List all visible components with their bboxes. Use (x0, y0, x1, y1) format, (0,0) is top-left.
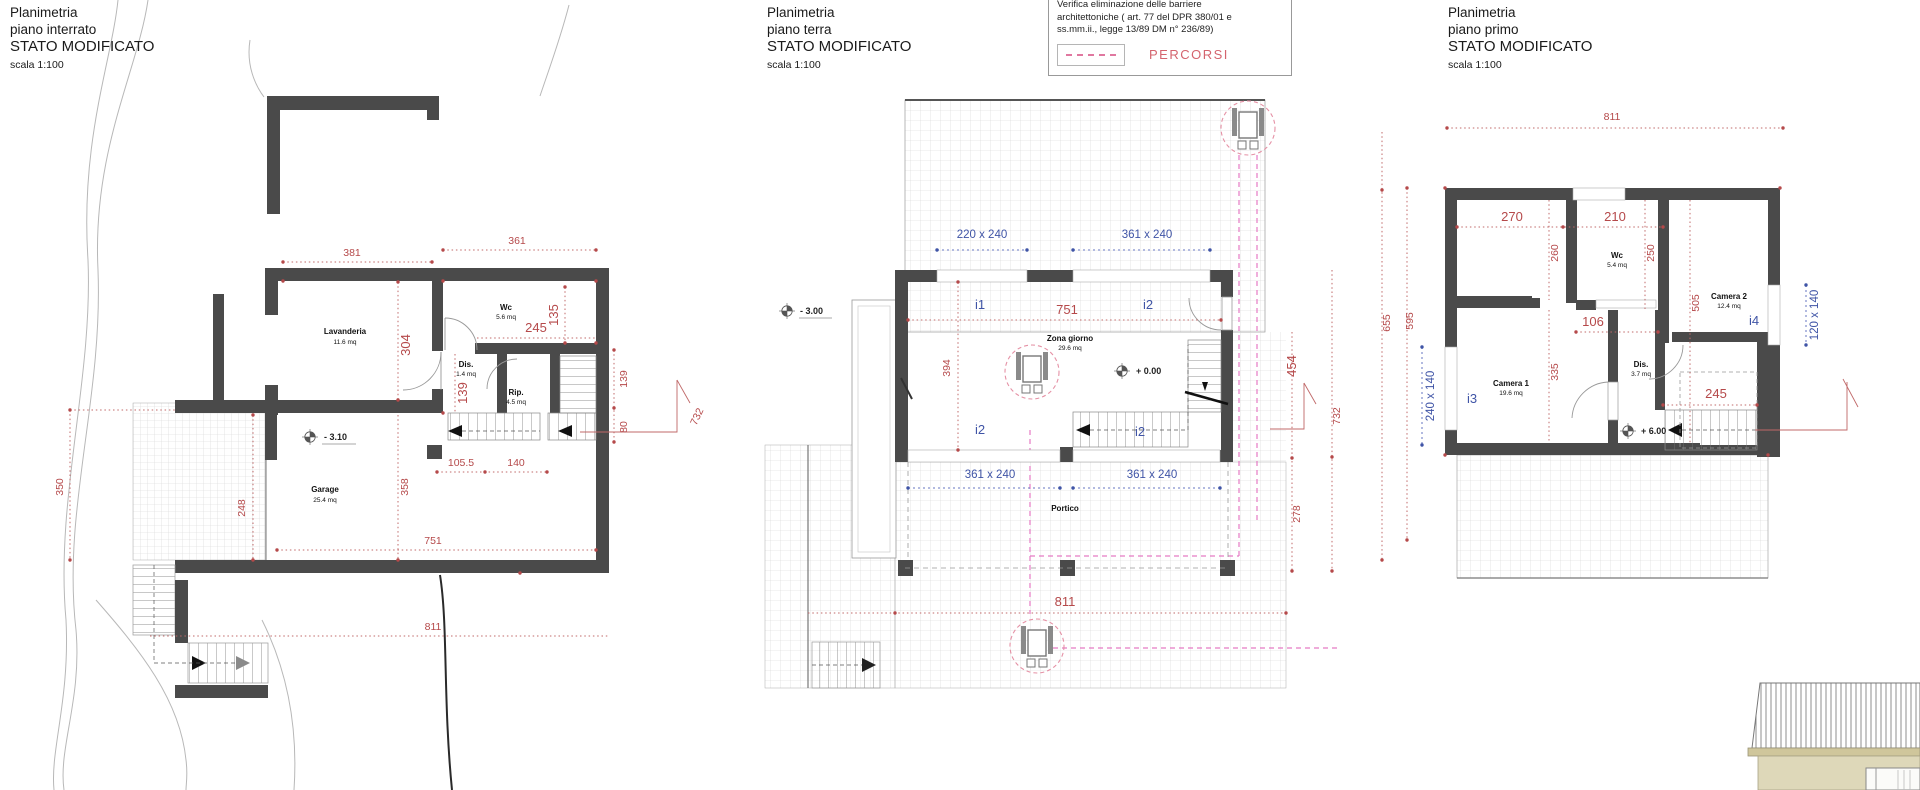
basement-title-block: Planimetria piano interrato STATO MODIFI… (10, 4, 154, 72)
percorsi-swatch (1057, 44, 1125, 66)
label-i3: i3 (1467, 391, 1477, 406)
legend-text-line3: ss.mm.ii., legge 13/89 DM n° 236/89) (1057, 24, 1283, 37)
planter-strip (852, 300, 896, 558)
basement-level: - 3.10 (324, 432, 347, 442)
plans-drawing: 381 361 245 135 304 139 139 80 732 350 2… (0, 0, 1920, 790)
dim-505: 505 (1690, 294, 1702, 312)
room-zona-giorno: Zona giorno (1047, 334, 1093, 343)
room-garage: Garage (311, 485, 339, 494)
room-wc-basement: Wc (500, 303, 513, 312)
first-terrace-paving (1457, 455, 1768, 578)
dim-732-basement: 732 (688, 406, 706, 427)
first-title-block: Planimetria piano primo STATO MODIFICATO… (1448, 4, 1592, 72)
dim-250: 250 (1645, 244, 1657, 262)
room-dis-basement: Dis. (459, 360, 474, 369)
dim-80: 80 (618, 421, 630, 433)
room-camera2-area: 12.4 mq (1717, 303, 1741, 310)
label-i1: i1 (975, 297, 985, 312)
percorsi-dashed-line-icon (1066, 54, 1116, 56)
dim-811-first: 811 (1604, 111, 1621, 123)
window-361x240-bottom-left: 361 x 240 (965, 469, 1016, 481)
terrain-edge-line (440, 575, 452, 790)
ground-exterior-stairs (812, 642, 880, 688)
ground-floor-plan: 220 x 240 361 x 240 361 x 240 361 x 240 … (765, 100, 1343, 688)
floor-plan-sheet: 381 361 245 135 304 139 139 80 732 350 2… (0, 0, 1920, 790)
dim-655: 655 (1381, 314, 1393, 332)
ground-title-block: Planimetria piano terra STATO MODIFICATO… (767, 4, 911, 72)
dim-106: 106 (1582, 314, 1604, 329)
legend-text-line1: Verifica eliminazione delle barriere (1057, 0, 1283, 12)
level-marker-icon (302, 429, 318, 445)
legend-text-line2: architettoniche ( art. 77 del DPR 380/01… (1057, 12, 1283, 25)
ground-level-out: - 3.00 (800, 306, 823, 316)
level-marker-icon (1620, 423, 1636, 439)
window-220x240: 220 x 240 (957, 229, 1008, 241)
room-portico: Portico (1051, 504, 1079, 513)
dim-751-basement: 751 (424, 535, 442, 547)
elevation-fascia (1748, 748, 1920, 756)
ground-title-line3: STATO MODIFICATO (767, 38, 911, 57)
legend-swatch-row: PERCORSI (1057, 44, 1283, 66)
dim-105-5: 105.5 (448, 457, 474, 469)
dim-139-right: 139 (618, 370, 630, 388)
dim-270: 270 (1501, 209, 1523, 224)
room-camera2: Camera 2 (1711, 292, 1748, 301)
basement-title-line1: Planimetria (10, 4, 154, 21)
first-title-line2: piano primo (1448, 21, 1592, 38)
ground-level-in: + 0.00 (1136, 366, 1161, 376)
ground-title-scale: scala 1:100 (767, 59, 911, 72)
dim-135: 135 (546, 304, 561, 326)
dim-381: 381 (343, 247, 361, 259)
room-wc-first: Wc (1611, 251, 1624, 260)
percorsi-label: PERCORSI (1149, 46, 1229, 63)
basement-window (265, 315, 278, 385)
room-garage-area: 25.4 mq (313, 497, 337, 504)
ground-title-line1: Planimetria (767, 4, 911, 21)
first-title-line1: Planimetria (1448, 4, 1592, 21)
ground-stairs (1073, 340, 1228, 447)
wheelchair-symbol (1005, 345, 1059, 399)
room-lavanderia-area: 11.6 mq (333, 339, 356, 346)
dim-260: 260 (1549, 244, 1561, 262)
accessibility-legend: Verifica eliminazione delle barriere arc… (1048, 0, 1292, 76)
room-dis-basement-area: 1.4 mq (456, 371, 476, 378)
elevation-roof (1752, 683, 1920, 748)
basement-exterior-stairs (133, 565, 268, 698)
dim-751-ground: 751 (1056, 302, 1078, 317)
room-dis-first-area: 3.7 mq (1631, 371, 1651, 378)
dim-811-ground: 811 (1055, 594, 1076, 609)
basement-plan: 381 361 245 135 304 139 139 80 732 350 2… (53, 0, 706, 790)
dim-210: 210 (1604, 209, 1626, 224)
dim-139-inner: 139 (455, 382, 470, 404)
dim-350: 350 (54, 478, 66, 496)
dim-248: 248 (236, 499, 248, 517)
first-stairs (1665, 372, 1757, 450)
terrain-contours (53, 0, 569, 790)
dim-595: 595 (1404, 312, 1416, 330)
room-rip: Rip. (508, 388, 523, 397)
ground-title-line2: piano terra (767, 21, 911, 38)
room-zona-giorno-area: 29.6 mq (1058, 345, 1082, 352)
room-camera1: Camera 1 (1493, 379, 1530, 388)
window-361x240-top: 361 x 240 (1122, 229, 1173, 241)
basement-title-line2: piano interrato (10, 21, 154, 38)
dim-811-basement: 811 (425, 621, 442, 633)
dim-140: 140 (507, 457, 525, 469)
room-wc-first-area: 5.4 mq (1607, 262, 1627, 269)
dim-732-ground: 732 (1331, 407, 1343, 425)
window-361x240-bottom-right: 361 x 240 (1127, 469, 1178, 481)
label-i2-left: i2 (975, 422, 985, 437)
dim-278: 278 (1291, 505, 1303, 523)
label-i4: i4 (1749, 313, 1759, 328)
dim-304: 304 (398, 334, 413, 356)
first-doors (1572, 345, 1683, 420)
first-title-line3: STATO MODIFICATO (1448, 38, 1592, 57)
elevation-fragment (1748, 683, 1920, 790)
level-marker-icon (1114, 363, 1130, 379)
label-i2-stairs: i2 (1135, 424, 1145, 439)
ground-terrace-paving (905, 100, 1265, 332)
room-rip-area: 4.5 mq (506, 399, 526, 406)
dim-358: 358 (399, 478, 411, 496)
room-dis-first: Dis. (1634, 360, 1649, 369)
elevation-window (1866, 768, 1920, 790)
room-camera1-area: 19.6 mq (1499, 390, 1523, 397)
basement-courtyard-paving (133, 403, 265, 560)
level-marker-icon (779, 303, 795, 319)
dim-394: 394 (941, 359, 953, 377)
ground-right-paving (1233, 332, 1286, 462)
dim-245: 245 (525, 320, 547, 335)
first-title-scale: scala 1:100 (1448, 59, 1592, 72)
label-i2-top: i2 (1143, 297, 1153, 312)
basement-title-scale: scala 1:100 (10, 59, 154, 72)
dim-361: 361 (508, 235, 526, 247)
dim-454: 454 (1284, 355, 1299, 377)
window-120x140: 120 x 140 (1809, 290, 1821, 341)
basement-title-line3: STATO MODIFICATO (10, 38, 154, 57)
window-240x140: 240 x 140 (1425, 371, 1437, 422)
dim-335: 335 (1549, 363, 1561, 381)
room-wc-basement-area: 5.6 mq (496, 314, 516, 321)
room-lavanderia: Lavanderia (324, 327, 367, 336)
dim-245-first: 245 (1705, 386, 1727, 401)
first-level: + 6.00 (1641, 426, 1666, 436)
first-floor-plan: 811 270 210 260 250 106 505 655 595 335 … (1380, 111, 1858, 578)
